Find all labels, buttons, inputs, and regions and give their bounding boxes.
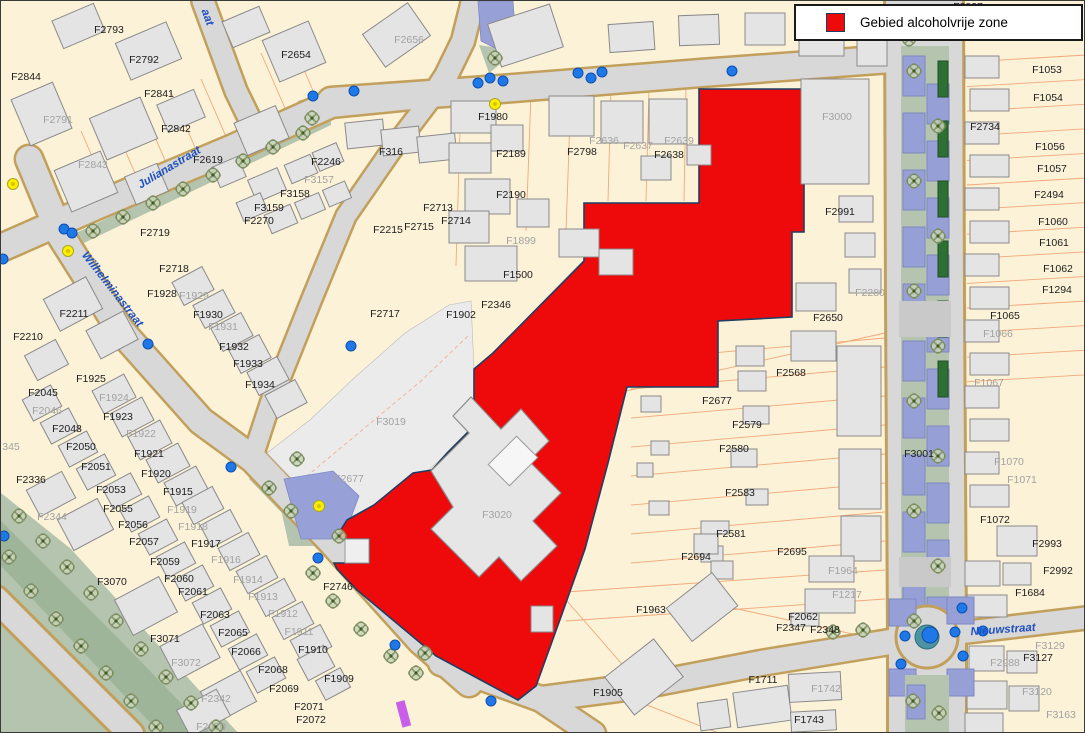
blue-point-marker — [486, 696, 496, 706]
parcel-label: 345 — [2, 441, 20, 453]
parcel-label: F2650 — [813, 312, 843, 324]
parcel-label: F3127 — [1023, 652, 1053, 664]
legend-zone-swatch — [826, 13, 845, 32]
parcel-label: F1684 — [1015, 587, 1045, 599]
parcel-label: F2580 — [719, 443, 749, 455]
parcel-label: F2068 — [258, 664, 288, 676]
parcel-label: F1743 — [794, 714, 824, 726]
parcel-label: F2583 — [725, 487, 755, 499]
parcel-label: F1294 — [1042, 284, 1072, 296]
parcel-label: F2056 — [118, 519, 148, 531]
parcel-label: F2844 — [11, 71, 41, 83]
parcel-label: F1909 — [324, 673, 354, 685]
blue-point-marker — [597, 67, 607, 77]
parcel-label: F1067 — [974, 377, 1004, 389]
parcel-label: F1500 — [503, 269, 533, 281]
parcel-label: F2793 — [94, 24, 124, 36]
parcel-label: F1918 — [178, 521, 208, 533]
parcel-label: F2051 — [81, 461, 111, 473]
parcel-label: F2246 — [311, 156, 341, 168]
parcel-label: F2991 — [825, 206, 855, 218]
parcel-label: F1921 — [134, 448, 164, 460]
parcel-label: F2057 — [129, 536, 159, 548]
parcel-label: F2494 — [1034, 189, 1064, 201]
parcel-label: F2270 — [244, 215, 274, 227]
parcel-label: F1742 — [811, 683, 841, 695]
parcel-label: F2715 — [404, 221, 434, 233]
blue-point-marker — [1, 254, 8, 264]
parcel-label: F2072 — [296, 714, 326, 726]
parcel-label: F2210 — [13, 331, 43, 343]
blue-point-marker — [485, 73, 495, 83]
parcel-label: F2714 — [441, 215, 471, 227]
blue-point-marker — [727, 66, 737, 76]
parcel-label: F2713 — [423, 202, 453, 214]
parcel-label: F2063 — [200, 609, 230, 621]
parcel-label: F2336 — [16, 474, 46, 486]
parcel-label: F2639 — [664, 135, 694, 147]
parcel-label: F1920 — [141, 468, 171, 480]
parcel-label: F2190 — [496, 189, 526, 201]
blue-point-marker — [1, 531, 9, 541]
blue-point-marker — [349, 86, 359, 96]
parcel-label: F2050 — [66, 441, 96, 453]
parcel-label: F2579 — [732, 419, 762, 431]
parcel-label: F2346 — [481, 299, 511, 311]
parcel-label: F3070 — [97, 576, 127, 588]
parcel-label: F2048 — [52, 423, 82, 435]
parcel-label: F3020 — [482, 509, 512, 521]
parcel-label: F2280 — [855, 287, 885, 299]
parcel-label: F2734 — [970, 121, 1000, 133]
parcel-label: F2719 — [140, 227, 170, 239]
parcel-label: F2843 — [78, 159, 108, 171]
parcel-label: F3019 — [376, 416, 406, 428]
parcel-label: F2568 — [776, 367, 806, 379]
parcel-label: F2638 — [654, 149, 684, 161]
parcel-label: F2717 — [370, 308, 400, 320]
parcel-label: F2065 — [218, 627, 248, 639]
parcel-label: F1062 — [1043, 263, 1073, 275]
parcel-label: F2677 — [702, 395, 732, 407]
parcel-label: F3120 — [1022, 686, 1052, 698]
parcel-label: F2993 — [1032, 538, 1062, 550]
parcel-label: F2071 — [294, 701, 324, 713]
parcel-label: F1060 — [1038, 216, 1068, 228]
parcel-label: F2791 — [43, 114, 73, 126]
parcel-label: F1905 — [593, 687, 623, 699]
parcel-label: F2656 — [394, 34, 424, 46]
parcel-label: F2988 — [990, 657, 1020, 669]
parcel-label: F1065 — [990, 310, 1020, 322]
blue-point-marker — [390, 640, 400, 650]
parcel-label: F1061 — [1039, 237, 1069, 249]
blue-point-marker — [226, 462, 236, 472]
map-viewport[interactable]: F2793F2792F2844F2841F2791F2842F2843F2654… — [0, 0, 1085, 733]
blue-point-marker — [308, 91, 318, 101]
parcel-label: F2069 — [269, 683, 299, 695]
parcel-label: F2842 — [161, 123, 191, 135]
parcel-label: F1911 — [285, 626, 314, 638]
parcel-label: F1931 — [208, 321, 238, 333]
parcel-label: F1916 — [211, 554, 241, 566]
parcel-label: F2746 — [323, 581, 353, 593]
parcel-label: F3159 — [254, 202, 284, 214]
parcel-label: F1923 — [103, 411, 133, 423]
blue-point-marker — [922, 627, 938, 643]
parcel-label: F1925 — [76, 373, 106, 385]
parcel-label: F2637 — [623, 140, 653, 152]
parcel-label: F1922 — [126, 428, 156, 440]
blue-point-marker — [957, 603, 967, 613]
blue-point-marker — [573, 68, 583, 78]
parcel-label: F2992 — [1043, 565, 1073, 577]
parcel-label: F2215 — [373, 224, 403, 236]
parcel-label: F3072 — [171, 657, 201, 669]
parcel-label: F1217 — [832, 589, 862, 601]
parcel-label: F1912 — [268, 608, 298, 620]
parcel-label: F1915 — [163, 486, 193, 498]
parcel-label: F1964 — [828, 565, 858, 577]
parcel-label: F1913 — [248, 591, 278, 603]
parcel-label: F3163 — [1046, 709, 1076, 721]
zone-notch — [345, 539, 369, 563]
parcel-label: F2046 — [32, 405, 62, 417]
blue-point-marker — [346, 341, 356, 351]
parcel-label: F1057 — [1037, 163, 1067, 175]
parcel-label: F2211 — [60, 308, 89, 320]
parcel-label: F1924 — [99, 392, 129, 404]
parcel-label: F2718 — [159, 263, 189, 275]
parcel-label: F1072 — [980, 514, 1010, 526]
legend-zone-label: Gebied alcoholvrije zone — [860, 15, 1008, 30]
parcel-label: F2059 — [150, 556, 180, 568]
parcel-label: F1053 — [1032, 64, 1062, 76]
parcel-label: F2792 — [129, 54, 159, 66]
parcel-label: F2189 — [496, 148, 526, 160]
parcel-label: F3001 — [904, 448, 934, 460]
parcel-label: F1963 — [636, 604, 666, 616]
parcel-label: F1930 — [193, 309, 223, 321]
parcel-label: F1902 — [446, 309, 476, 321]
blue-point-marker — [313, 553, 323, 563]
parcel-label: F3158 — [280, 188, 310, 200]
parcel-label: F2841 — [144, 88, 174, 100]
parcel-label: F2055 — [103, 503, 133, 515]
map-canvas[interactable]: F2793F2792F2844F2841F2791F2842F2843F2654… — [1, 1, 1085, 733]
parcel-label: F2636 — [589, 135, 619, 147]
blue-point-marker — [586, 73, 596, 83]
parcel-label: F3129 — [1035, 640, 1065, 652]
blue-point-marker — [473, 78, 483, 88]
parcel-label: F2694 — [681, 551, 711, 563]
parcel-label: F1980 — [478, 111, 508, 123]
parcel-label: F3157 — [304, 174, 334, 186]
parcel-label: F1928 — [147, 288, 177, 300]
parcel-label: F1071 — [1007, 474, 1037, 486]
parcel-label: F3000 — [822, 111, 852, 123]
parcel-label: F2061 — [178, 586, 208, 598]
parcel-label: F2695 — [777, 546, 807, 558]
parcel-label: F1917 — [191, 538, 221, 550]
shed-in-zone — [531, 606, 553, 632]
parcel-label: F1054 — [1033, 92, 1063, 104]
parcel-label: F1910 — [298, 644, 328, 656]
parcel-label: F2677 — [334, 473, 364, 485]
parcel-label: F3071 — [150, 633, 180, 645]
blue-point-marker — [900, 631, 910, 641]
blue-point-marker — [950, 627, 960, 637]
parcel-label: F2581 — [716, 528, 746, 540]
parcel-label: F1711 — [749, 674, 778, 686]
parcel-label: F2070 — [196, 721, 226, 733]
parcel-label: F2798 — [567, 146, 597, 158]
parcel-label: F1914 — [233, 574, 263, 586]
parcel-label: F2344 — [37, 511, 67, 523]
legend-box: Gebied alcoholvrije zone — [794, 4, 1083, 41]
parcel-label: F316 — [379, 146, 403, 158]
parcel-label: F1899 — [506, 235, 536, 247]
parcel-label: F2066 — [231, 646, 261, 658]
parcel-label: F2060 — [164, 573, 194, 585]
parcel-label: F1934 — [245, 379, 275, 391]
blue-point-marker — [896, 659, 906, 669]
parcel-label: F2347 — [776, 622, 806, 634]
parcel-label: F2045 — [28, 387, 58, 399]
parcel-label: F1929 — [179, 290, 209, 302]
parcel-label: F1070 — [994, 456, 1024, 468]
parcel-label: F1933 — [233, 358, 263, 370]
parcel-label: F1932 — [219, 341, 249, 353]
blue-point-marker — [498, 76, 508, 86]
parcel-label: F2654 — [281, 49, 311, 61]
blue-point-marker — [958, 651, 968, 661]
parcel-label: F1066 — [983, 328, 1013, 340]
blue-point-marker — [143, 339, 153, 349]
parcel-label: F1056 — [1035, 141, 1065, 153]
blue-point-marker — [67, 228, 77, 238]
parcel-label: F2342 — [201, 693, 231, 705]
parcel-label: F2348 — [810, 624, 840, 636]
parcel-label: F1919 — [167, 504, 197, 516]
parcel-label: F2053 — [96, 484, 126, 496]
